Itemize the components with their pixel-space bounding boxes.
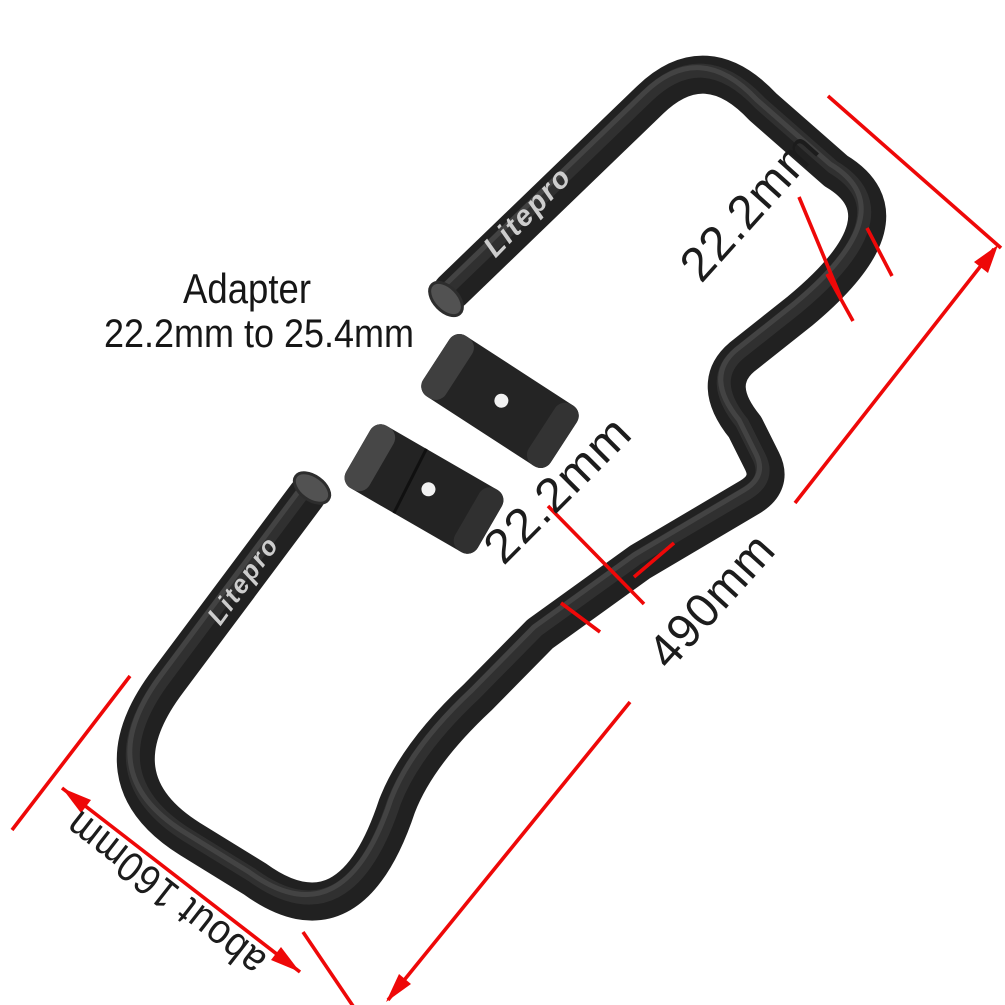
dim-label-top-diameter: 22.2mm	[670, 122, 830, 291]
adapter-note-line1: Adapter	[183, 265, 311, 312]
brand-logo-lower-grip: Litepro	[201, 530, 285, 630]
text-labels: Adapter 22.2mm to 25.4mm 22.2mm 22.2mm 4…	[56, 122, 830, 986]
product-photo-canvas: Adapter 22.2mm to 25.4mm 22.2mm 22.2mm 4…	[0, 0, 1005, 1005]
brand-logo-top-grip: Litepro	[477, 161, 578, 264]
dim-160-extension-left	[12, 676, 130, 830]
handlebar-dimension-diagram: Adapter 22.2mm to 25.4mm 22.2mm 22.2mm 4…	[0, 0, 1005, 1005]
adapter-note-line2: 22.2mm to 25.4mm	[104, 312, 414, 356]
dim-160-extension-right	[303, 932, 353, 1005]
